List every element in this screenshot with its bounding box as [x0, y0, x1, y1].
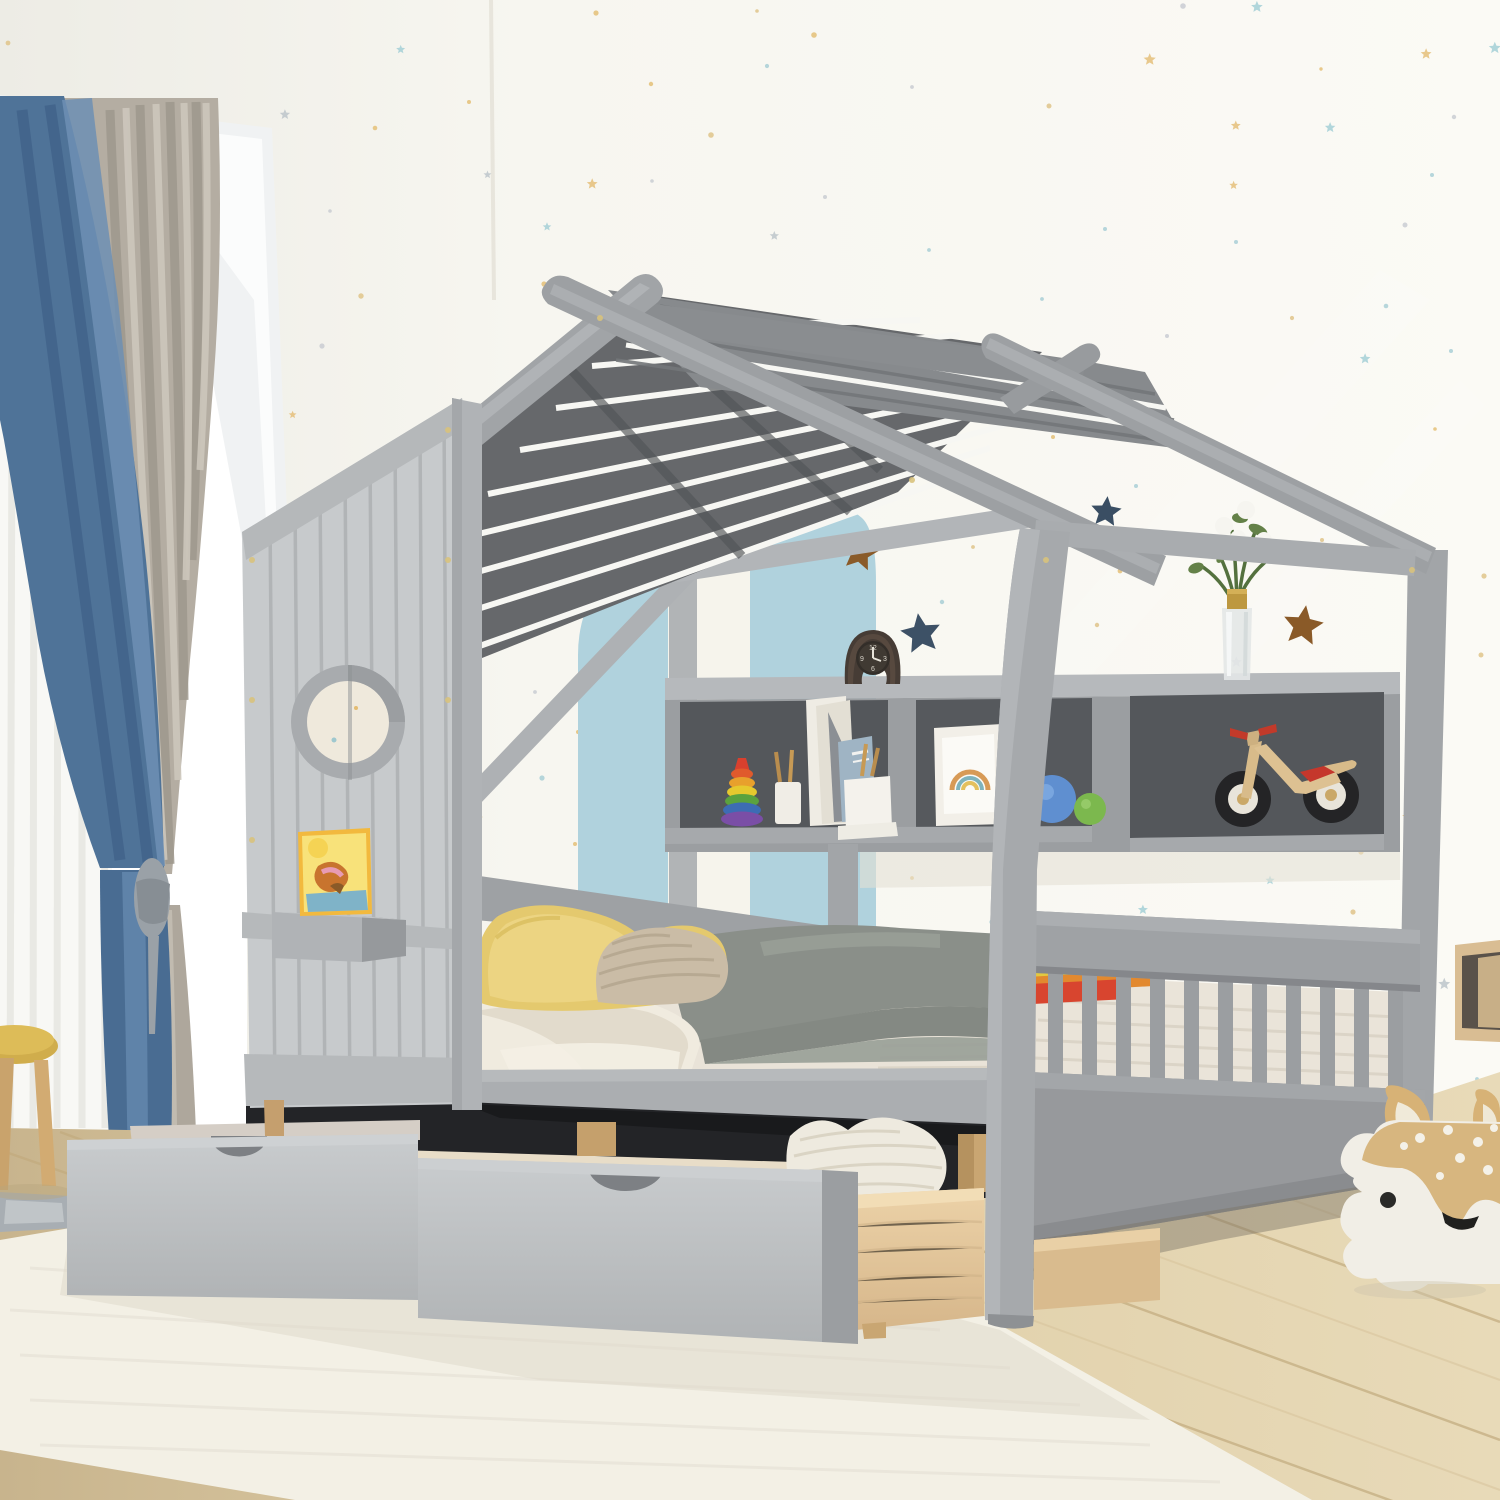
svg-text:6: 6 — [871, 666, 875, 673]
svg-text:12: 12 — [869, 645, 877, 652]
svg-text:3: 3 — [883, 656, 887, 663]
svg-text:9: 9 — [860, 656, 864, 663]
